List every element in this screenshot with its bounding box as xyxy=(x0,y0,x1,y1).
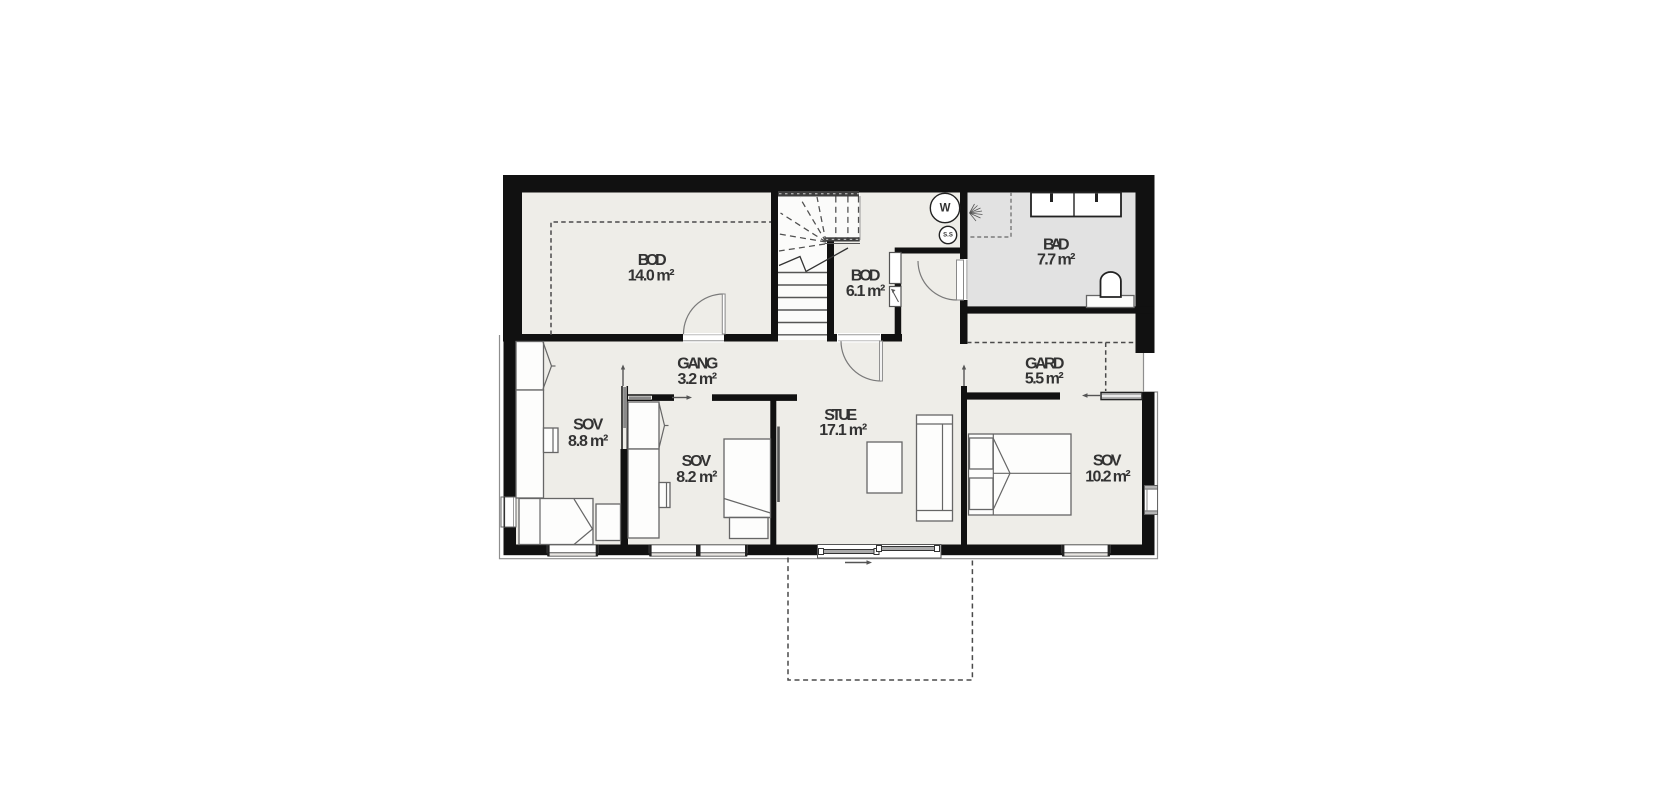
svg-text:10.2 m²: 10.2 m² xyxy=(1085,468,1131,485)
svg-text:SOV: SOV xyxy=(1093,453,1122,470)
svg-text:8.8 m²: 8.8 m² xyxy=(568,433,608,450)
svg-text:6.1 m²: 6.1 m² xyxy=(846,283,886,300)
svg-text:GANG: GANG xyxy=(677,356,718,373)
svg-text:7.7 m²: 7.7 m² xyxy=(1037,252,1076,269)
svg-text:S.S: S.S xyxy=(943,233,953,239)
svg-text:17.1 m²: 17.1 m² xyxy=(819,422,867,439)
svg-text:5.5 m²: 5.5 m² xyxy=(1025,371,1064,388)
svg-text:W: W xyxy=(940,203,951,215)
svg-text:14.0 m²: 14.0 m² xyxy=(628,267,675,284)
svg-text:3.2 m²: 3.2 m² xyxy=(678,371,718,388)
svg-text:8.2 m²: 8.2 m² xyxy=(676,469,717,486)
svg-text:SOV: SOV xyxy=(682,453,712,470)
svg-text:SOV: SOV xyxy=(573,417,604,434)
